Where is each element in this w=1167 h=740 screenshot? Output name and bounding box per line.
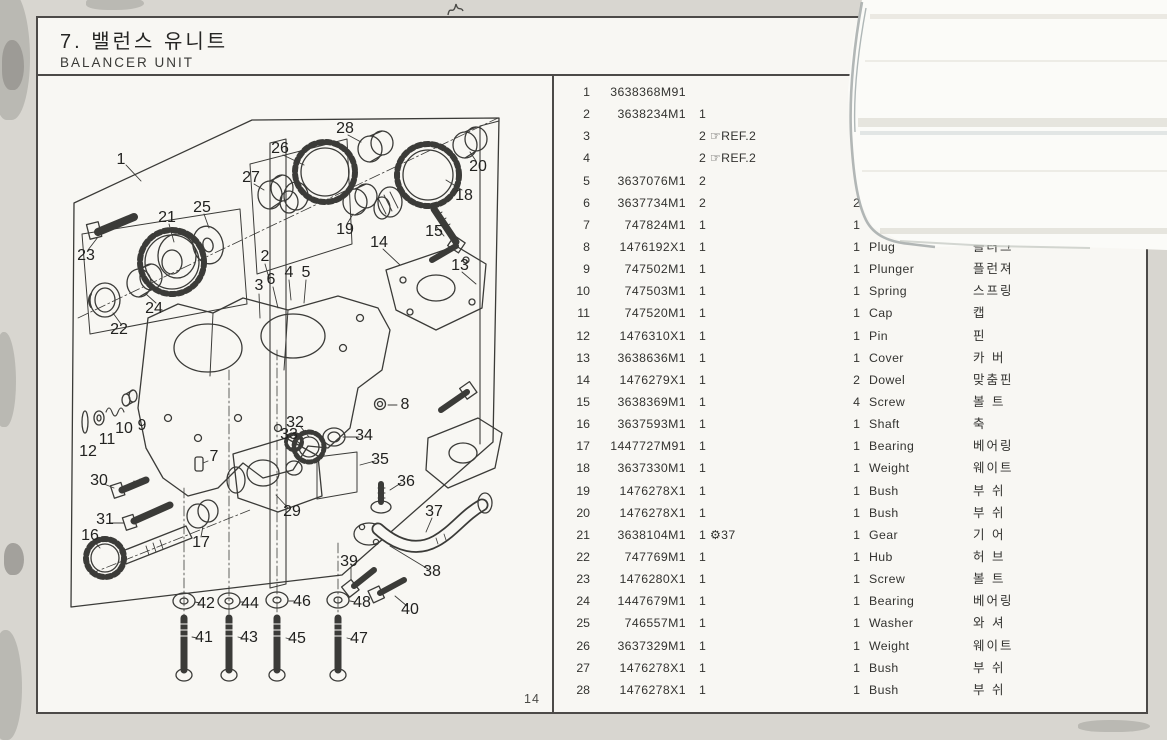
table-row: 141476279X112Dowel맞춤핀 [554,369,1146,391]
scan-smudge [0,630,22,740]
quantity-2: 1 [761,347,860,369]
item-number: 12 [554,325,590,347]
callout-1: 1 [117,151,126,169]
quantity: 1 [699,369,761,391]
description-kr: 부 쉬 [973,657,1146,679]
description-kr: 맞춤핀 [973,369,1146,391]
callout-21: 21 [158,209,176,227]
quantity: 1 [699,657,761,679]
part-number: 3638368M91 [590,81,686,103]
description-kr: 부 쉬 [973,679,1146,701]
item-number: 27 [554,657,590,679]
part-number: 3638636M1 [590,347,686,369]
callout-18: 18 [455,187,473,205]
table-row: 191476278X111Bush부 쉬 [554,480,1146,502]
quantity-2: 1 [761,568,860,590]
callout-20: 20 [469,158,487,176]
description-kr: 부 쉬 [973,480,1146,502]
description-en: Washer [869,612,965,634]
item-number: 15 [554,391,590,413]
callout-6: 6 [267,271,276,289]
scan-smudge [4,543,24,575]
quantity: 1 [699,347,761,369]
part-number: 3637330M1 [590,457,686,479]
table-row: 11747520M111Cap캡 [554,302,1146,324]
table-row: 183637330M111Weight웨이트 [554,457,1146,479]
quantity: 2 [699,192,761,214]
quantity-2: 2 [761,369,860,391]
item-number: 26 [554,635,590,657]
item-number: 3 [554,125,590,147]
part-number: 1476280X1 [590,568,686,590]
quantity: 1 [699,612,761,634]
description-en: Shaft [869,413,965,435]
quantity-2: 1 [761,258,860,280]
quantity [699,81,761,103]
callout-42: 42 [197,595,215,613]
table-row: 213638104M11 ⚙371Gear기 어 [554,524,1146,546]
description-en: Hub [869,546,965,568]
quantity: 1 [699,480,761,502]
quantity-2: 1 [761,457,860,479]
item-number: 5 [554,170,590,192]
description-en: Bush [869,502,965,524]
callout-16: 16 [81,527,99,545]
quantity-2: 1 [761,325,860,347]
table-row: 231476280X111Screw볼 트 [554,568,1146,590]
item-number: 17 [554,435,590,457]
description-kr: 와 셔 [973,612,1146,634]
callout-13: 13 [451,257,469,275]
description-en: Cover [869,347,965,369]
scan-smudge [2,40,24,90]
table-row: 241447679M111Bearing베어링 [554,590,1146,612]
scan-smudge [1078,720,1150,732]
description-en: Bearing [869,590,965,612]
part-number: 1476278X1 [590,480,686,502]
quantity-2: 1 [761,302,860,324]
table-row: 153638369M114Screw볼 트 [554,391,1146,413]
item-number: 2 [554,103,590,125]
item-number: 11 [554,302,590,324]
item-number: 23 [554,568,590,590]
part-number: 1476278X1 [590,657,686,679]
callout-28: 28 [336,120,354,138]
callout-26: 26 [271,140,289,158]
part-number: 3638369M1 [590,391,686,413]
quantity: 1 [699,103,761,125]
description-en: Cap [869,302,965,324]
quantity-2: 1 [761,413,860,435]
callout-37: 37 [425,503,443,521]
item-number: 7 [554,214,590,236]
description-kr: 플런져 [973,258,1146,280]
table-row: 121476310X111Pin핀 [554,325,1146,347]
part-number: 747502M1 [590,258,686,280]
callout-11: 11 [99,431,116,449]
item-number: 24 [554,590,590,612]
part-number [590,125,686,147]
table-row: 281476278X111Bush부 쉬 [554,679,1146,701]
quantity: 1 [699,568,761,590]
table-row: 25746557M111Washer와 셔 [554,612,1146,634]
part-number: 747769M1 [590,546,686,568]
quantity: 1 [699,546,761,568]
callout-22: 22 [110,321,128,339]
quantity: 1 [699,457,761,479]
callout-7: 7 [210,448,219,466]
callout-43: 43 [240,629,258,647]
callout-19: 19 [336,221,354,239]
description-kr: 스프링 [973,280,1146,302]
part-number: 1447727M91 [590,435,686,457]
quantity: 1 [699,391,761,413]
callout-31: 31 [96,511,114,529]
description-kr: 베어링 [973,590,1146,612]
callout-9: 9 [138,417,147,435]
part-number: 1476279X1 [590,369,686,391]
callout-23: 23 [77,247,95,265]
quantity: 2 ☞REF.2 [699,147,761,169]
quantity-2: 1 [761,435,860,457]
quantity: 1 [699,236,761,258]
quantity: 1 [699,214,761,236]
description-en: Dowel [869,369,965,391]
description-en: Weight [869,457,965,479]
quantity-2: 1 [761,612,860,634]
callout-41: 41 [195,629,213,647]
item-number: 14 [554,369,590,391]
quantity-2: 1 [761,280,860,302]
quantity: 1 [699,302,761,324]
description-kr: 캡 [973,302,1146,324]
description-kr: 베어링 [973,435,1146,457]
quantity: 1 [699,679,761,701]
item-number: 22 [554,546,590,568]
callout-33: 33 [280,426,298,444]
quantity: 2 ☞REF.2 [699,125,761,147]
callout-15: 15 [425,223,443,241]
part-number: 3638234M1 [590,103,686,125]
description-kr: 핀 [973,325,1146,347]
item-number: 10 [554,280,590,302]
part-number [590,147,686,169]
table-row: 9747502M111Plunger플런져 [554,258,1146,280]
description-en: Bush [869,657,965,679]
part-number: 3637734M1 [590,192,686,214]
callout-34: 34 [355,427,373,445]
callout-17: 17 [192,534,210,552]
callout-46: 46 [293,593,311,611]
description-kr: 축 [973,413,1146,435]
description-kr: 허 브 [973,546,1146,568]
table-row: 10747503M111Spring스프링 [554,280,1146,302]
callout-10: 10 [115,420,133,438]
quantity-2: 1 [761,524,860,546]
callout-12: 12 [79,443,97,461]
item-number: 18 [554,457,590,479]
description-kr: 웨이트 [973,457,1146,479]
callout-44: 44 [241,595,259,613]
part-number: 3637329M1 [590,635,686,657]
part-number: 1476278X1 [590,679,686,701]
quantity: 1 [699,502,761,524]
table-row: 271476278X111Bush부 쉬 [554,657,1146,679]
quantity: 1 [699,280,761,302]
part-number: 747520M1 [590,302,686,324]
quantity: 1 [699,325,761,347]
pen-mark [440,0,474,20]
callout-25: 25 [193,199,211,217]
item-number: 9 [554,258,590,280]
description-en: Bearing [869,435,965,457]
callout-4: 4 [285,264,294,282]
quantity-2: 4 [761,391,860,413]
callout-14: 14 [370,234,388,252]
part-number: 1476310X1 [590,325,686,347]
callout-27: 27 [242,169,260,187]
callout-5: 5 [302,264,311,282]
description-kr: 웨이트 [973,635,1146,657]
callout-8: 8 [401,396,410,414]
description-en: Weight [869,635,965,657]
part-number: 747503M1 [590,280,686,302]
callout-3: 3 [255,277,264,295]
part-number: 3637593M1 [590,413,686,435]
description-kr: 기 어 [973,524,1146,546]
part-number: 3637076M1 [590,170,686,192]
part-number: 3638104M1 [590,524,686,546]
item-number: 6 [554,192,590,214]
quantity: 1 [699,413,761,435]
callout-48: 48 [353,594,371,612]
description-en: Spring [869,280,965,302]
quantity-2: 1 [761,480,860,502]
part-number: 746557M1 [590,612,686,634]
item-number: 16 [554,413,590,435]
part-number: 1447679M1 [590,590,686,612]
description-kr: 볼 트 [973,568,1146,590]
item-number: 13 [554,347,590,369]
description-kr: 부 쉬 [973,502,1146,524]
description-en: Bush [869,480,965,502]
callout-29: 29 [283,503,301,521]
description-en: Pin [869,325,965,347]
description-en: Bush [869,679,965,701]
item-number: 21 [554,524,590,546]
table-row: 163637593M111Shaft축 [554,413,1146,435]
table-row: 133638636M111Cover카 버 [554,347,1146,369]
scan-smudge [86,0,144,10]
table-row: 171447727M9111Bearing베어링 [554,435,1146,457]
description-en: Gear [869,524,965,546]
item-number: 4 [554,147,590,169]
description-kr: 볼 트 [973,391,1146,413]
quantity: 1 [699,435,761,457]
part-number: 1476278X1 [590,502,686,524]
table-row: 263637329M111Weight웨이트 [554,635,1146,657]
part-number: 1476192X1 [590,236,686,258]
quantity: 2 [699,170,761,192]
item-number: 20 [554,502,590,524]
quantity: 1 [699,635,761,657]
quantity: 1 ⚙37 [699,524,761,546]
item-number: 8 [554,236,590,258]
item-number: 25 [554,612,590,634]
description-en: Plunger [869,258,965,280]
table-row: 201476278X111Bush부 쉬 [554,502,1146,524]
quantity-2: 1 [761,502,860,524]
quantity-2: 1 [761,590,860,612]
callout-36: 36 [397,473,415,491]
item-number: 19 [554,480,590,502]
callout-24: 24 [145,300,163,318]
description-en: Screw [869,568,965,590]
quantity-2: 1 [761,546,860,568]
part-number: 747824M1 [590,214,686,236]
quantity-2: 1 [761,679,860,701]
page-number: 14 [516,692,548,706]
quantity-2: 1 [761,657,860,679]
callout-45: 45 [288,630,306,648]
callout-47: 47 [350,630,368,648]
scan-smudge [0,332,16,427]
table-row: 22747769M111Hub허 브 [554,546,1146,568]
item-number: 1 [554,81,590,103]
quantity-2: 1 [761,635,860,657]
callout-35: 35 [371,451,389,469]
quantity: 1 [699,258,761,280]
torn-paper-overlay [840,0,1167,258]
callout-38: 38 [423,563,441,581]
callout-39: 39 [340,553,358,571]
description-en: Screw [869,391,965,413]
callout-40: 40 [401,601,419,619]
description-kr: 카 버 [973,347,1146,369]
callout-30: 30 [90,472,108,490]
quantity: 1 [699,590,761,612]
callout-2: 2 [261,248,270,266]
item-number: 28 [554,679,590,701]
